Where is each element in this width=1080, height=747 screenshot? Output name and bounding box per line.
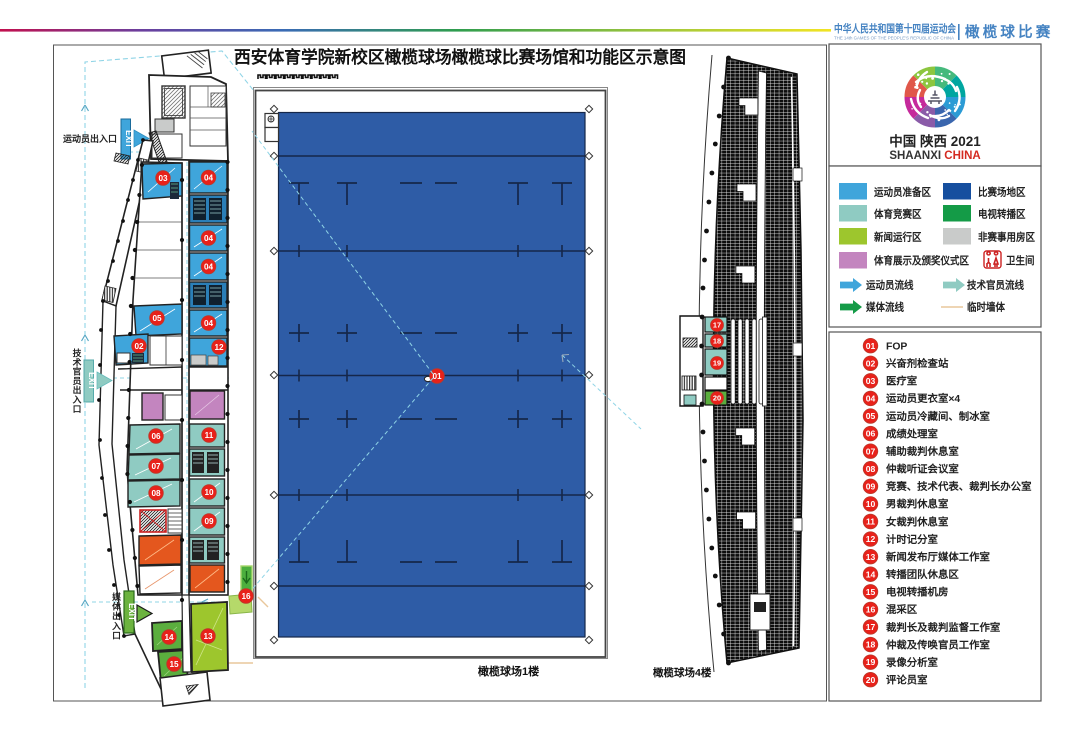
svg-text:20: 20 bbox=[866, 675, 876, 685]
svg-text:橄榄球场1楼: 橄榄球场1楼 bbox=[478, 664, 539, 678]
svg-text:11: 11 bbox=[866, 517, 875, 527]
svg-text:裁判长及裁判监督工作室: 裁判长及裁判监督工作室 bbox=[886, 621, 1001, 634]
svg-text:EXIT: EXIT bbox=[127, 603, 136, 621]
svg-text:08: 08 bbox=[151, 489, 161, 498]
svg-text:兴奋剂检查站: 兴奋剂检查站 bbox=[886, 357, 949, 370]
svg-text:卫生间: 卫生间 bbox=[1006, 254, 1035, 267]
svg-text:02: 02 bbox=[866, 358, 876, 368]
svg-text:15: 15 bbox=[866, 587, 876, 597]
svg-text:运动员准备区: 运动员准备区 bbox=[874, 186, 931, 199]
svg-text:评论员室: 评论员室 bbox=[886, 674, 928, 687]
svg-text:新闻发布厅媒体工作室: 新闻发布厅媒体工作室 bbox=[886, 550, 991, 563]
svg-text:07: 07 bbox=[866, 446, 876, 456]
svg-text:14: 14 bbox=[164, 633, 174, 642]
svg-text:09: 09 bbox=[204, 517, 214, 526]
svg-text:12: 12 bbox=[866, 534, 876, 544]
svg-text:FOP: FOP bbox=[886, 342, 907, 353]
svg-text:入: 入 bbox=[112, 621, 121, 631]
svg-text:13: 13 bbox=[866, 552, 876, 562]
svg-text:口: 口 bbox=[73, 404, 82, 414]
svg-text:17: 17 bbox=[713, 321, 721, 330]
svg-text:比赛场地区: 比赛场地区 bbox=[978, 186, 1026, 199]
svg-text:04: 04 bbox=[204, 234, 214, 243]
svg-text:中国 陕西 2021: 中国 陕西 2021 bbox=[889, 133, 981, 149]
svg-text:13: 13 bbox=[203, 632, 213, 641]
svg-text:技术官员流线: 技术官员流线 bbox=[967, 279, 1024, 292]
svg-text:电视转播区: 电视转播区 bbox=[978, 208, 1026, 221]
svg-text:03: 03 bbox=[866, 376, 876, 386]
svg-text:运动员流线: 运动员流线 bbox=[866, 279, 914, 292]
svg-text:仲裁听证会议室: 仲裁听证会议室 bbox=[886, 463, 959, 476]
svg-text:中华人民共和国第十四届运动会: 中华人民共和国第十四届运动会 bbox=[834, 22, 956, 35]
svg-text:成绩处理室: 成绩处理室 bbox=[886, 427, 939, 440]
svg-text:SHAANXI CHINA: SHAANXI CHINA bbox=[889, 150, 980, 162]
svg-text:运动员冷藏间、制冰室: 运动员冷藏间、制冰室 bbox=[886, 410, 991, 423]
svg-text:11: 11 bbox=[205, 431, 214, 440]
svg-text:20: 20 bbox=[713, 394, 721, 403]
svg-text:EXIT: EXIT bbox=[87, 372, 96, 390]
svg-text:08: 08 bbox=[866, 464, 876, 474]
svg-text:04: 04 bbox=[204, 262, 214, 271]
svg-text:辅助裁判休息室: 辅助裁判休息室 bbox=[886, 445, 959, 458]
svg-text:17: 17 bbox=[866, 622, 876, 632]
svg-text:01: 01 bbox=[866, 341, 876, 351]
svg-text:19: 19 bbox=[866, 657, 876, 667]
svg-text:运动员更衣室×4: 运动员更衣室×4 bbox=[886, 392, 960, 405]
svg-text:媒体流线: 媒体流线 bbox=[865, 301, 904, 314]
svg-text:录像分析室: 录像分析室 bbox=[886, 656, 939, 669]
svg-text:16: 16 bbox=[241, 592, 251, 601]
svg-text:18: 18 bbox=[713, 337, 721, 346]
svg-text:06: 06 bbox=[866, 429, 876, 439]
svg-text:竞赛、技术代表、裁判长办公室: 竞赛、技术代表、裁判长办公室 bbox=[885, 480, 1032, 493]
svg-text:10: 10 bbox=[866, 499, 876, 509]
svg-text:02: 02 bbox=[134, 342, 144, 351]
svg-text:体育展示及颁奖仪式区: 体育展示及颁奖仪式区 bbox=[874, 254, 969, 267]
svg-text:15: 15 bbox=[169, 660, 179, 669]
svg-text:转播团队休息区: 转播团队休息区 bbox=[886, 568, 959, 581]
svg-text:体育竞赛区: 体育竞赛区 bbox=[874, 208, 922, 221]
svg-text:西安体育学院新校区橄榄球场橄榄球比赛场馆和功能区示意图: 西安体育学院新校区橄榄球场橄榄球比赛场馆和功能区示意图 bbox=[234, 47, 686, 67]
svg-text:19: 19 bbox=[713, 359, 721, 368]
svg-text:女裁判休息室: 女裁判休息室 bbox=[886, 515, 949, 528]
svg-text:医疗室: 医疗室 bbox=[886, 375, 918, 388]
svg-text:EXIT: EXIT bbox=[124, 130, 133, 148]
svg-text:口: 口 bbox=[112, 630, 121, 640]
svg-text:07: 07 bbox=[151, 462, 161, 471]
svg-text:新闻运行区: 新闻运行区 bbox=[874, 231, 922, 244]
svg-text:运动员出入口: 运动员出入口 bbox=[63, 133, 117, 144]
svg-text:橄榄球场4楼: 橄榄球场4楼 bbox=[653, 666, 712, 679]
svg-text:18: 18 bbox=[866, 640, 876, 650]
svg-text:06: 06 bbox=[151, 432, 161, 441]
svg-text:05: 05 bbox=[866, 411, 876, 421]
svg-text:媒: 媒 bbox=[112, 591, 121, 602]
svg-text:04: 04 bbox=[204, 173, 214, 182]
svg-text:计时记分室: 计时记分室 bbox=[886, 533, 939, 546]
svg-text:非赛事用房区: 非赛事用房区 bbox=[978, 231, 1035, 244]
svg-text:04: 04 bbox=[866, 394, 876, 404]
svg-text:电视转播机房: 电视转播机房 bbox=[886, 586, 948, 599]
svg-text:01: 01 bbox=[432, 372, 442, 381]
svg-text:临时墙体: 临时墙体 bbox=[967, 301, 1005, 314]
svg-text:THE 14th GAMES OF THE PEOPLE'S: THE 14th GAMES OF THE PEOPLE'S REPUBLIC … bbox=[834, 36, 955, 41]
svg-text:04: 04 bbox=[204, 319, 214, 328]
svg-text:混采区: 混采区 bbox=[886, 603, 918, 616]
svg-text:橄榄球比赛: 橄榄球比赛 bbox=[965, 23, 1054, 41]
svg-text:12: 12 bbox=[214, 343, 224, 352]
svg-text:14: 14 bbox=[866, 569, 876, 579]
svg-text:10: 10 bbox=[204, 488, 214, 497]
svg-text:男裁判休息室: 男裁判休息室 bbox=[886, 498, 949, 511]
svg-text:16: 16 bbox=[866, 604, 876, 614]
svg-text:03: 03 bbox=[158, 174, 168, 183]
svg-text:09: 09 bbox=[866, 481, 876, 491]
svg-text:05: 05 bbox=[152, 314, 162, 323]
svg-text:体: 体 bbox=[112, 601, 121, 612]
svg-text:仲裁及传唤官员工作室: 仲裁及传唤官员工作室 bbox=[886, 638, 991, 651]
